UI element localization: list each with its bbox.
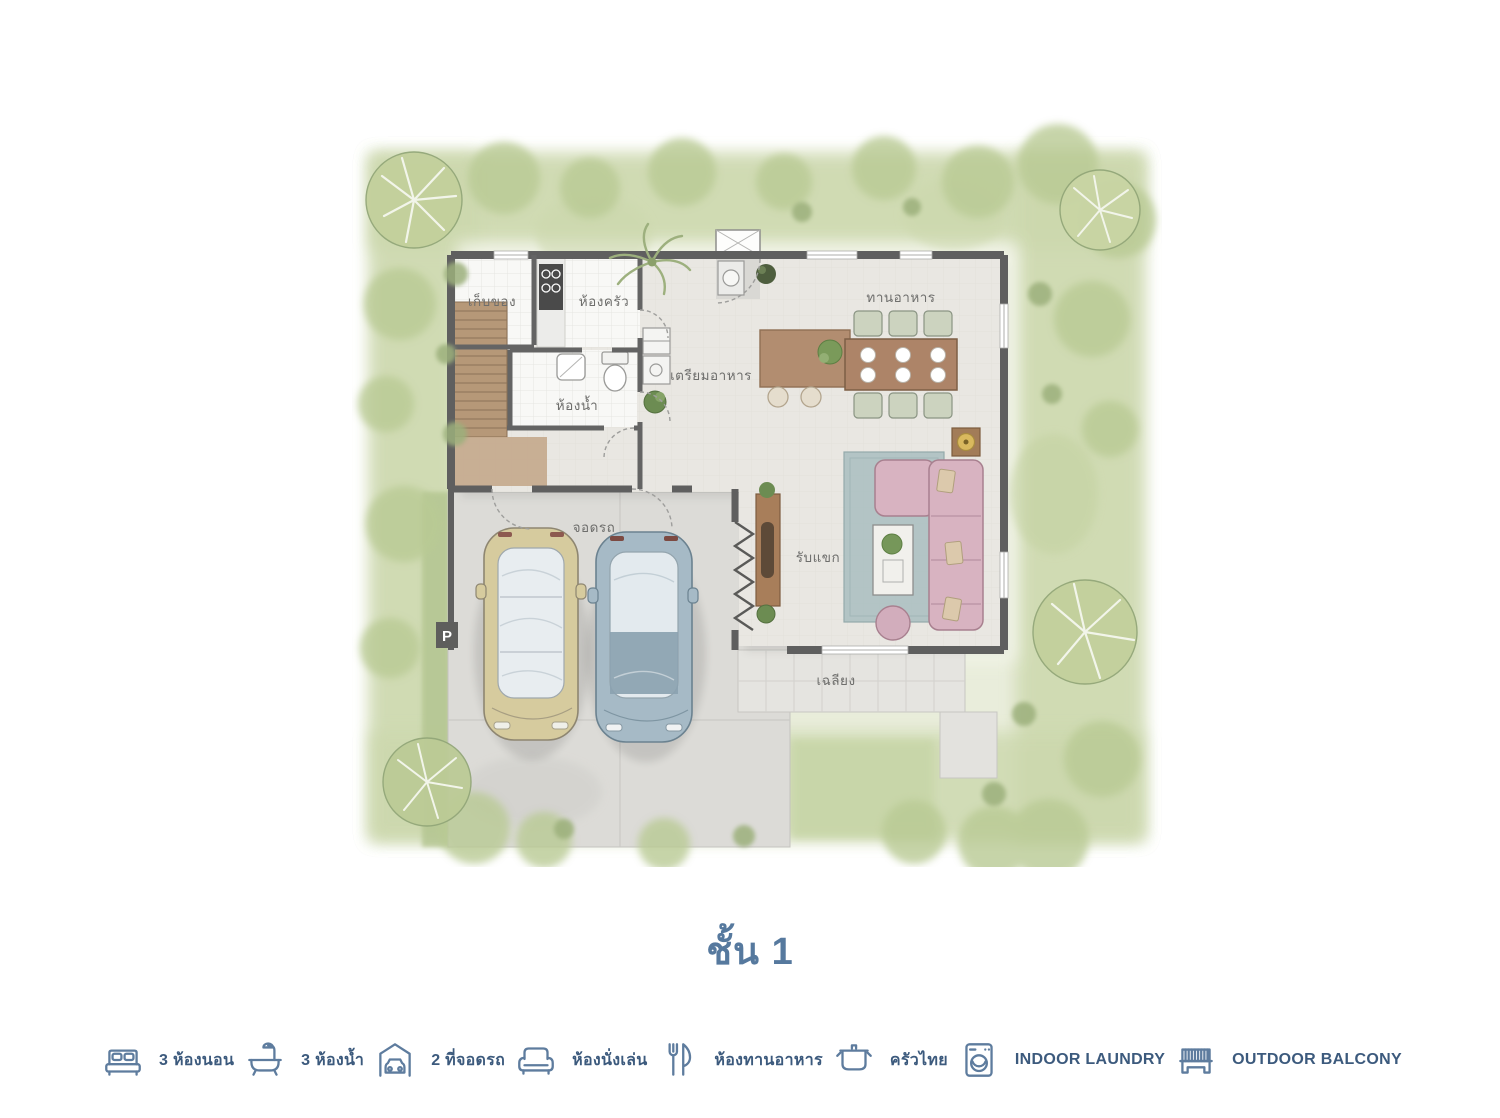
legend-item-indoor-laundry: INDOOR LAUNDRY (956, 1037, 1165, 1083)
legend-label-bedrooms: 3 ห้องนอน (159, 1048, 234, 1073)
room-label-porch: เฉลียง (816, 673, 855, 688)
legend-label-living-room: ห้องนั่งเล่น (572, 1048, 647, 1073)
bench-icon (1173, 1037, 1219, 1083)
sofa-icon (513, 1037, 559, 1083)
pouf (876, 606, 910, 640)
legend-label-bathrooms: 3 ห้องน้ำ (301, 1048, 364, 1073)
legend-label-dining-room: ห้องทานอาหาร (714, 1048, 822, 1073)
legend-label-outdoor-balcony: OUTDOOR BALCONY (1232, 1051, 1402, 1069)
bed-icon (100, 1037, 146, 1083)
fork-knife-icon (655, 1037, 701, 1083)
room-label-storage: เก็บของ (468, 292, 516, 309)
parking-sign-letter: P (442, 628, 452, 645)
car-garage-icon (372, 1037, 418, 1083)
legend-label-thai-kitchen: ครัวไทย (890, 1048, 948, 1073)
room-label-prep: เตรียมอาหาร (670, 368, 752, 383)
legend-item-bedrooms: 3 ห้องนอน (100, 1037, 234, 1083)
page: P เก็บของ ห้องครัว ห้องน้ำ เตรียมอาหาร ท… (0, 0, 1500, 1118)
coffee-table (873, 525, 913, 595)
room-label-parking: จอดรถ (573, 520, 616, 535)
legend-label-parking: 2 ที่จอดรถ (431, 1048, 505, 1073)
washing-machine-icon (956, 1037, 1002, 1083)
legend-item-living-room: ห้องนั่งเล่น (513, 1037, 647, 1083)
legend-item-thai-kitchen: ครัวไทย (831, 1037, 948, 1083)
room-label-dining: ทานอาหาร (866, 290, 935, 305)
legend-item-parking: 2 ที่จอดรถ (372, 1037, 505, 1083)
bathtub-icon (242, 1037, 288, 1083)
room-label-kitchen: ห้องครัว (579, 294, 629, 309)
bathroom (510, 350, 637, 427)
legend-item-outdoor-balcony: OUTDOOR BALCONY (1173, 1037, 1402, 1083)
car-blue (586, 532, 706, 762)
legend-label-indoor-laundry: INDOOR LAUNDRY (1015, 1051, 1165, 1069)
room-label-living: รับแขก (796, 550, 840, 565)
prep-area (643, 328, 670, 413)
parking-sign: P (436, 622, 458, 648)
pot-icon (831, 1037, 877, 1083)
living-room (844, 428, 983, 640)
car-beige (474, 528, 590, 760)
floor-plan-illustration: P เก็บของ ห้องครัว ห้องน้ำ เตรียมอาหาร ท… (352, 92, 1162, 867)
page-title: ชั้น 1 (0, 920, 1500, 981)
room-label-bathroom: ห้องน้ำ (556, 395, 598, 413)
legend-item-bathrooms: 3 ห้องน้ำ (242, 1037, 364, 1083)
legend: 3 ห้องนอน 3 ห้องน้ำ 2 ที่จอดรถ (100, 1032, 1402, 1088)
legend-item-dining-room: ห้องทานอาหาร (655, 1037, 822, 1083)
